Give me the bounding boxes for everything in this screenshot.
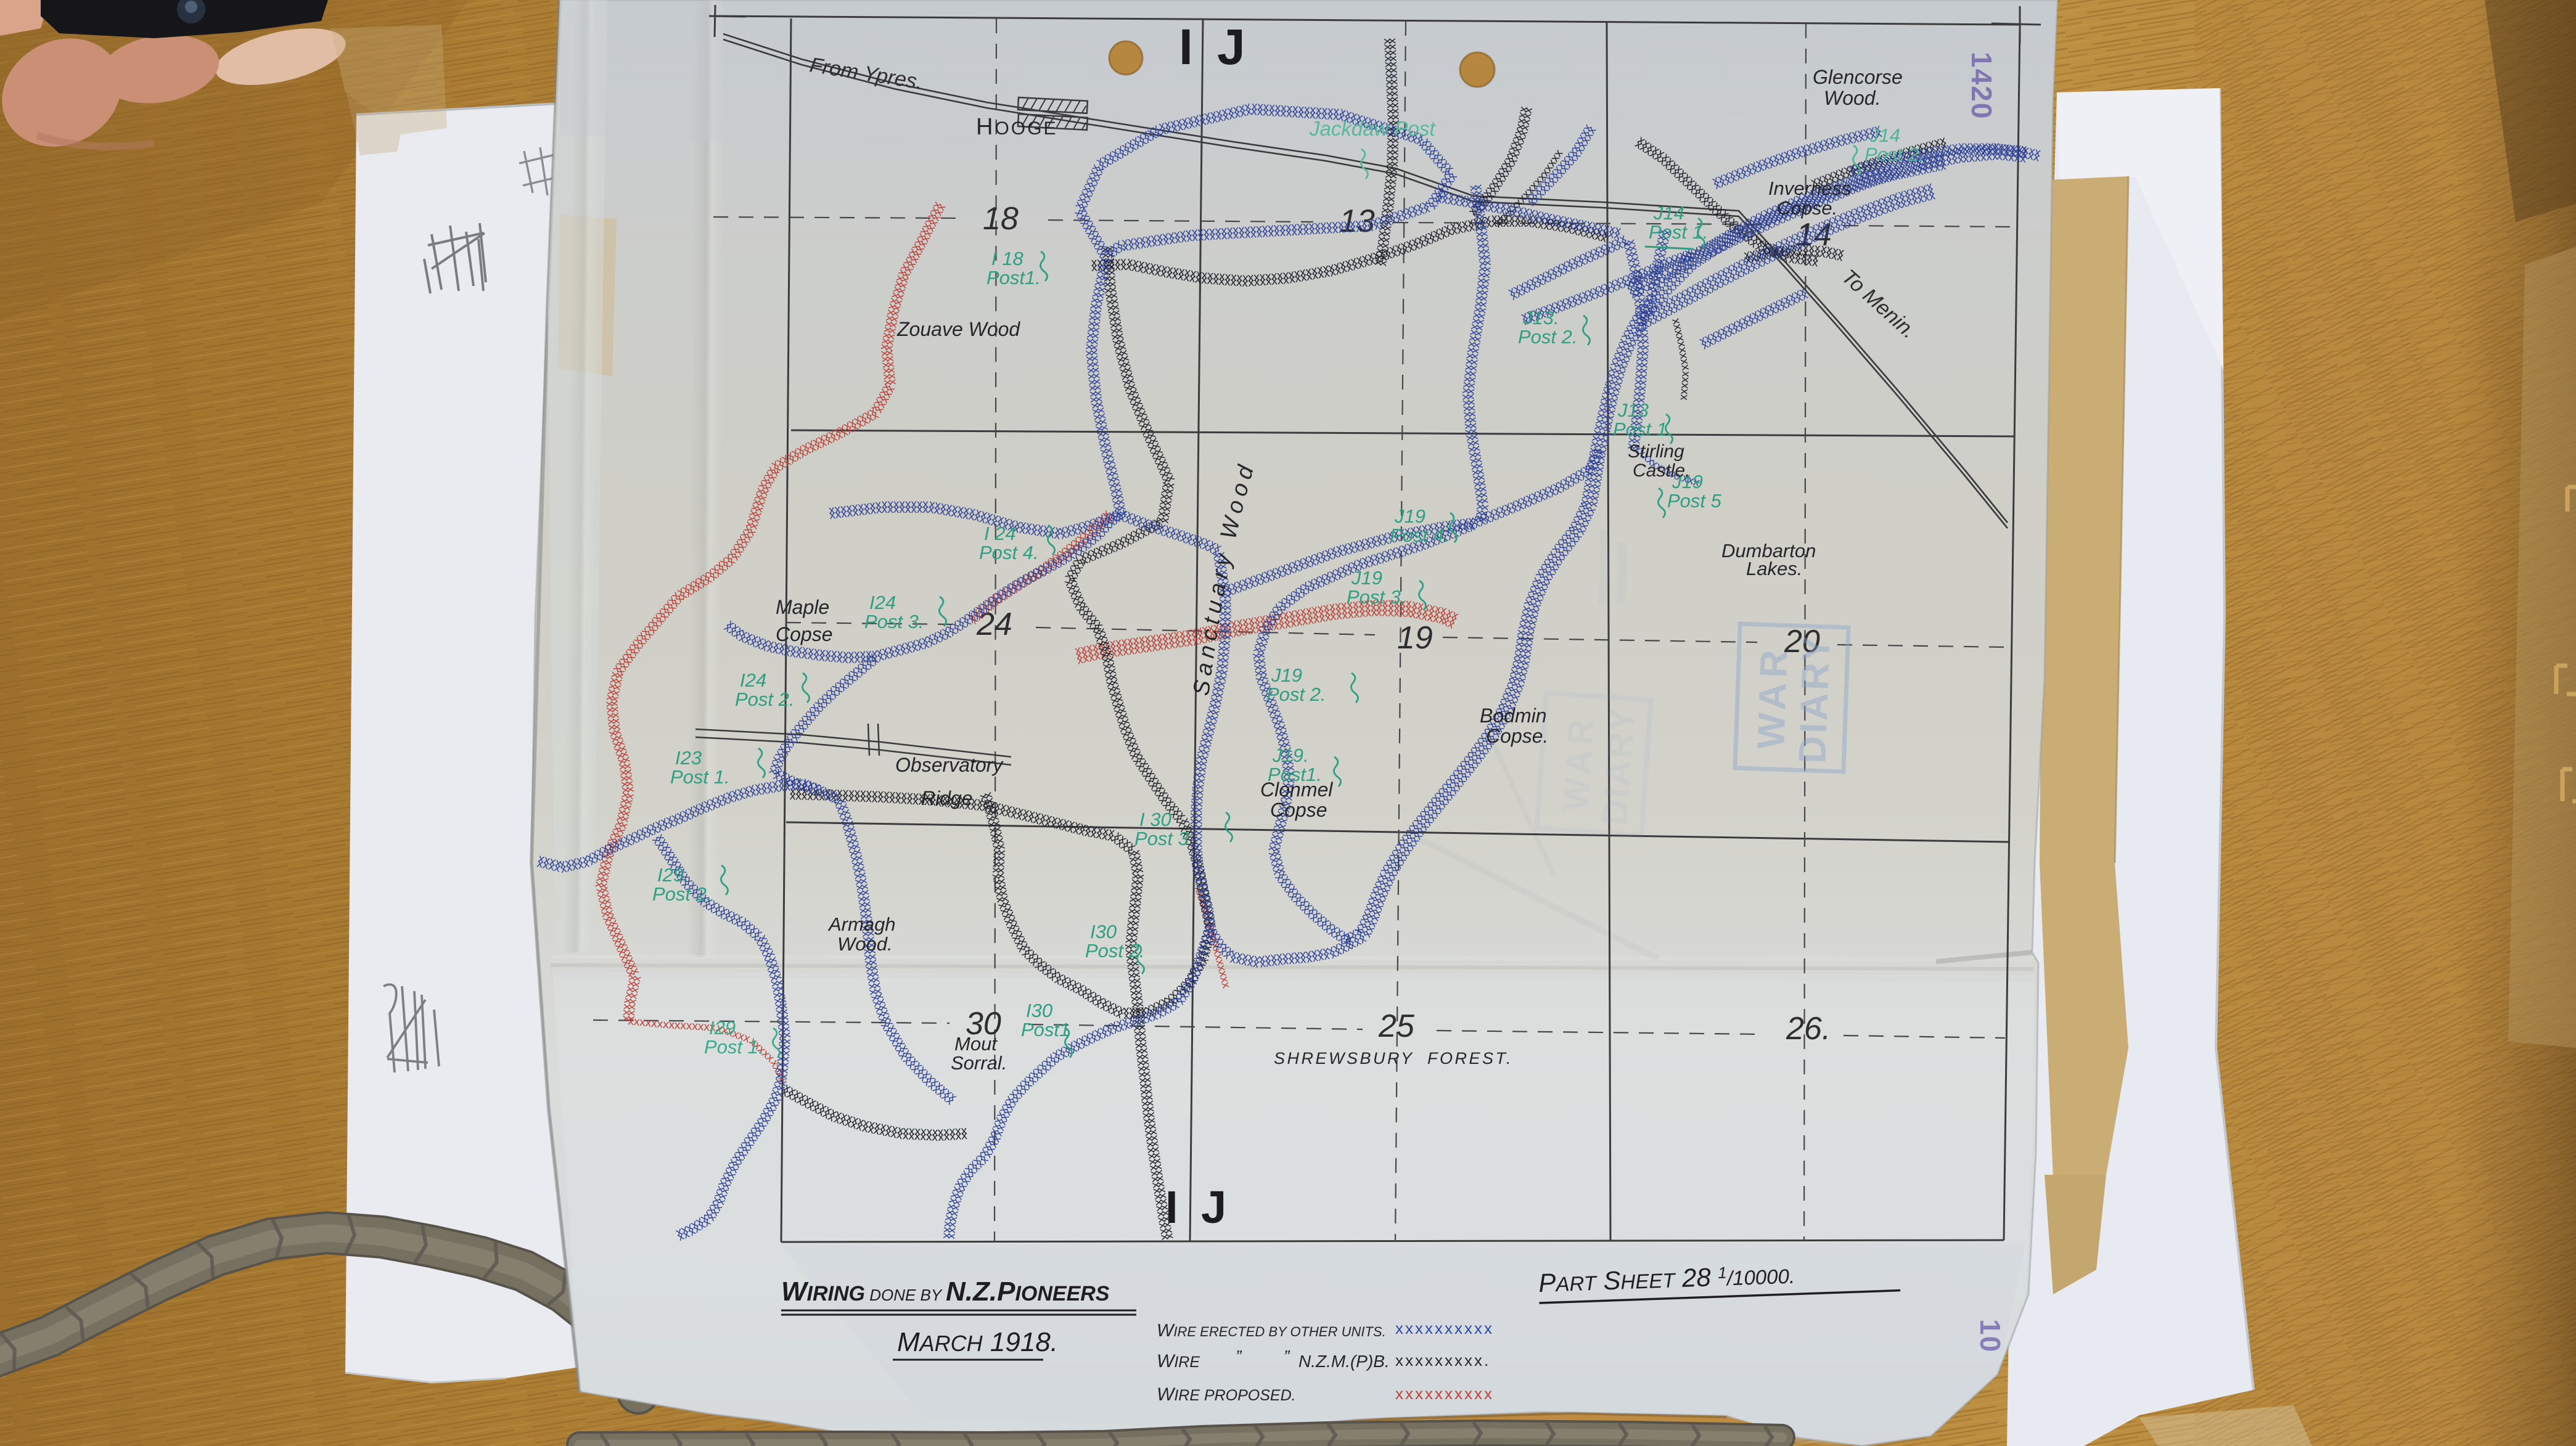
- svg-text:Post 2.: Post 2.: [735, 688, 795, 710]
- svg-text:Castle.: Castle.: [1633, 460, 1690, 481]
- svg-text:19: 19: [1397, 620, 1433, 656]
- svg-text:xxxxxxxxxx: xxxxxxxxxx: [1395, 1319, 1494, 1338]
- svg-text:WIRE PROPOSED.: WIRE PROPOSED.: [1157, 1384, 1296, 1405]
- svg-text:Copse: Copse: [1270, 799, 1327, 821]
- svg-text:Bodmin: Bodmin: [1480, 705, 1547, 727]
- svg-text:Mout: Mout: [954, 1033, 998, 1055]
- svg-text:MARCH 1918.: MARCH 1918.: [897, 1327, 1058, 1357]
- svg-text:I30: I30: [1090, 921, 1117, 942]
- svg-text:J14: J14: [1869, 125, 1900, 146]
- svg-text:SHREWSBURY FOREST.: SHREWSBURY FOREST.: [1274, 1049, 1513, 1068]
- svg-text:Post 1.: Post 1.: [704, 1036, 764, 1058]
- svg-text:xxxxxxxxx.: xxxxxxxxx.: [1395, 1351, 1490, 1370]
- svg-text:I24: I24: [869, 592, 896, 613]
- svg-text:Zouave Wood: Zouave Wood: [896, 318, 1020, 340]
- svg-text:J: J: [1201, 1182, 1226, 1233]
- svg-text:Post 2.: Post 2.: [652, 883, 712, 905]
- svg-text:Maple: Maple: [776, 596, 829, 618]
- svg-text:Copse.: Copse.: [1777, 197, 1837, 219]
- svg-text:I 24: I 24: [984, 523, 1016, 544]
- svg-text:I 30: I 30: [1139, 809, 1171, 830]
- svg-text:Ridge: Ridge: [921, 787, 973, 809]
- svg-text:Post1: Post1: [1021, 1019, 1070, 1040]
- svg-text:Stirling: Stirling: [1628, 441, 1684, 462]
- svg-text:Wood.: Wood.: [837, 933, 893, 955]
- svg-text:I29.: I29.: [657, 864, 689, 886]
- svg-text:J: J: [1217, 19, 1245, 75]
- svg-text:Glencorse: Glencorse: [1813, 66, 1903, 88]
- svg-text:WAR: WAR: [1556, 714, 1602, 812]
- svg-text:Copse: Copse: [776, 623, 833, 645]
- svg-text:Post 2.: Post 2.: [1085, 940, 1145, 962]
- svg-text:J14: J14: [1653, 202, 1684, 224]
- svg-text:Post 3.: Post 3.: [864, 611, 924, 632]
- svg-text:Jackdaw Post: Jackdaw Post: [1309, 117, 1436, 140]
- svg-text:Post 3: Post 3: [1134, 828, 1189, 849]
- svg-text:Post1.: Post1.: [987, 267, 1041, 288]
- svg-text:I: I: [1179, 19, 1193, 75]
- svg-text:WAR: WAR: [1750, 644, 1796, 750]
- svg-text:J19: J19: [1271, 664, 1302, 686]
- svg-text:18: 18: [983, 201, 1019, 237]
- svg-text:Post 1.: Post 1.: [670, 766, 730, 788]
- svg-text:Wood.: Wood.: [1824, 87, 1881, 109]
- svg-text:Post 4.: Post 4.: [1390, 525, 1450, 546]
- svg-text:I29: I29: [709, 1017, 736, 1039]
- svg-text:Post 2.: Post 2.: [1266, 684, 1326, 705]
- svg-text:N.Z.M.(P)B.: N.Z.M.(P)B.: [1298, 1352, 1390, 1371]
- svg-text:26.: 26.: [1786, 1011, 1831, 1047]
- svg-text:Post 2.: Post 2.: [1518, 326, 1578, 348]
- svg-text:10: 10: [1974, 1319, 2006, 1353]
- svg-text:Inverness: Inverness: [1768, 178, 1851, 199]
- svg-text:DIARY: DIARY: [1791, 633, 1838, 764]
- svg-text:Post 5: Post 5: [1667, 490, 1722, 512]
- svg-text:DIARY: DIARY: [1594, 705, 1643, 827]
- svg-text:HOOGE: HOOGE: [976, 114, 1057, 140]
- svg-text:J13: J13: [1617, 399, 1649, 421]
- svg-text:Post 3.: Post 3.: [1347, 586, 1406, 608]
- svg-text:I30: I30: [1026, 1000, 1052, 1021]
- svg-text:Post 2.: Post 2.: [1864, 144, 1924, 165]
- svg-text:Post 4.: Post 4.: [979, 542, 1039, 563]
- svg-text:Armagh: Armagh: [827, 913, 896, 935]
- svg-text:I 18: I 18: [991, 248, 1023, 269]
- svg-text:Post 1.: Post 1.: [1649, 221, 1708, 243]
- svg-text:Copse.: Copse.: [1486, 725, 1548, 747]
- svg-text:Sorral.: Sorral.: [951, 1052, 1007, 1074]
- svg-text:I23: I23: [675, 747, 702, 769]
- svg-text:J19.: J19.: [1272, 745, 1309, 766]
- svg-text:WIRE ERECTED BY OTHER UNIT: WIRE ERECTED BY OTHER UNITS.: [1157, 1321, 1386, 1341]
- svg-text:xxxxxxxxxx: xxxxxxxxxx: [1395, 1384, 1494, 1403]
- svg-text:Lakes.: Lakes.: [1746, 558, 1802, 579]
- svg-text:1420: 1420: [1966, 52, 1998, 120]
- svg-text:WIRE: WIRE: [1157, 1351, 1200, 1371]
- svg-text:J19: J19: [1394, 505, 1425, 527]
- svg-text:I24: I24: [740, 669, 766, 691]
- svg-text:J13.: J13.: [1522, 307, 1559, 329]
- svg-text:Observatory: Observatory: [895, 754, 1004, 776]
- svg-text:Clonmel: Clonmel: [1260, 778, 1333, 801]
- svg-text:Post 1.: Post 1.: [1613, 419, 1673, 440]
- svg-text:25: 25: [1378, 1008, 1415, 1044]
- svg-text:J19: J19: [1351, 567, 1382, 589]
